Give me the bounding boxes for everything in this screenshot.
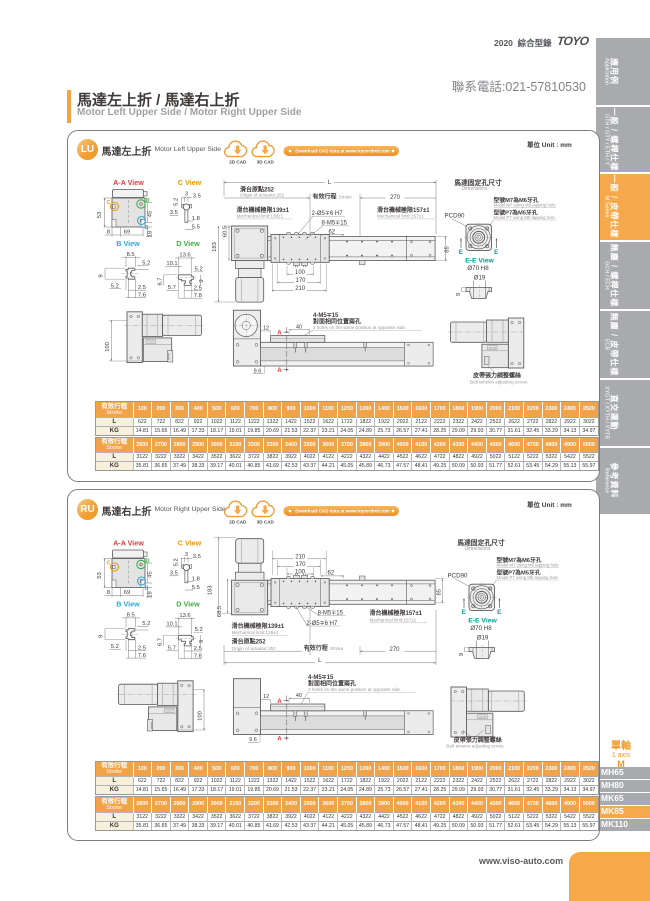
svg-text:5.5: 5.5 — [192, 585, 200, 591]
svg-text:40: 40 — [296, 693, 302, 699]
svg-text:L: L — [318, 658, 322, 664]
svg-text:8: 8 — [107, 590, 110, 596]
svg-text:9: 9 — [99, 274, 105, 277]
svg-text:有效行程: 有效行程 — [304, 644, 328, 652]
svg-text:3.5: 3.5 — [193, 194, 201, 200]
svg-text:B View: B View — [116, 239, 140, 248]
svg-text:9: 9 — [459, 653, 465, 656]
svg-text:TOYO: TOYO — [489, 346, 496, 350]
svg-text:40: 40 — [296, 324, 302, 330]
svg-text:B: B — [145, 225, 149, 231]
svg-text:Belt tension adjusting screw.: Belt tension adjusting screw. — [470, 379, 528, 384]
svg-text:18: 18 — [148, 231, 154, 237]
svg-text:3: 3 — [185, 192, 188, 198]
svg-text:183: 183 — [212, 242, 218, 252]
svg-text:13.6: 13.6 — [179, 613, 190, 619]
svg-text:A-A View: A-A View — [113, 539, 144, 548]
svg-text:滑台機械極限139±1: 滑台機械極限139±1 — [232, 622, 285, 630]
svg-text:E: E — [497, 609, 501, 616]
svg-text:9: 9 — [99, 635, 105, 638]
svg-text:270: 270 — [389, 647, 400, 653]
svg-text:Dimensions: Dimensions — [464, 546, 491, 552]
svg-text:9: 9 — [456, 293, 462, 296]
svg-text:有效行程: 有效行程 — [313, 193, 337, 201]
svg-text:53: 53 — [97, 572, 103, 578]
svg-text:B View: B View — [116, 600, 140, 609]
svg-text:100: 100 — [295, 570, 306, 576]
svg-text:10.1: 10.1 — [166, 261, 177, 267]
svg-text:53: 53 — [97, 212, 103, 218]
svg-text:1.8: 1.8 — [192, 577, 200, 583]
svg-text:Mechanical limit:157±1: Mechanical limit:157±1 — [370, 618, 417, 623]
svg-text:Ø19: Ø19 — [474, 275, 486, 282]
svg-text:A: A — [277, 367, 282, 374]
svg-text:2 holes on the same position a: 2 holes on the same position at opposite… — [308, 687, 401, 692]
svg-text:1.8: 1.8 — [192, 216, 200, 222]
svg-text:69: 69 — [124, 230, 130, 236]
svg-text:C: C — [107, 561, 111, 567]
svg-text:3.5: 3.5 — [193, 554, 201, 560]
svg-text:4-M5∓15: 4-M5∓15 — [313, 313, 339, 319]
svg-text:210: 210 — [295, 286, 306, 292]
svg-text:100: 100 — [105, 342, 111, 352]
svg-text:183: 183 — [208, 585, 214, 595]
svg-text:A: A — [277, 698, 282, 705]
svg-text:Origin of actuator:252: Origin of actuator:252 — [232, 646, 277, 651]
svg-text:TOYO: TOYO — [479, 715, 486, 719]
svg-text:滑台機械極限157±1: 滑台機械極限157±1 — [370, 609, 423, 617]
svg-text:Model P7 using M5 tapping hole: Model P7 using M5 tapping hole — [497, 575, 559, 580]
svg-text:A: A — [277, 736, 282, 743]
svg-text:8.5: 8.5 — [127, 613, 135, 619]
svg-text:170: 170 — [295, 562, 306, 568]
svg-text:L: L — [328, 180, 332, 186]
svg-text:D View: D View — [176, 239, 200, 248]
svg-text:皮帶張力調整螺絲: 皮帶張力調整螺絲 — [473, 372, 521, 380]
svg-text:9: 9 — [199, 279, 205, 282]
svg-text:210: 210 — [295, 554, 306, 560]
svg-text:69: 69 — [124, 590, 130, 596]
svg-text:E: E — [494, 249, 498, 256]
svg-text:13.6: 13.6 — [179, 252, 190, 258]
svg-text:5.2: 5.2 — [174, 198, 180, 206]
svg-text:4-M5∓15: 4-M5∓15 — [308, 675, 334, 681]
svg-text:A-A View: A-A View — [113, 178, 144, 187]
svg-text:E: E — [459, 249, 463, 256]
svg-text:PCD90: PCD90 — [445, 213, 466, 220]
svg-text:PCD90: PCD90 — [448, 573, 469, 580]
svg-text:C View: C View — [178, 539, 202, 548]
svg-text:Model M7 using M6 tapping hole: Model M7 using M6 tapping hole — [497, 563, 560, 568]
svg-text:60.5: 60.5 — [222, 226, 228, 237]
svg-text:8.5: 8.5 — [127, 252, 135, 258]
svg-text:6.7: 6.7 — [157, 638, 163, 646]
svg-text:Ø19: Ø19 — [477, 635, 489, 642]
svg-text:270: 270 — [390, 195, 401, 201]
svg-text:Ø70 H8: Ø70 H8 — [470, 625, 492, 632]
svg-text:D View: D View — [176, 600, 200, 609]
svg-text:TOYO: TOYO — [166, 709, 173, 713]
svg-text:E: E — [462, 609, 466, 616]
svg-text:9: 9 — [199, 640, 205, 643]
svg-text:2 holes on the same position a: 2 holes on the same position at opposite… — [313, 325, 406, 330]
svg-text:TOYO: TOYO — [147, 340, 154, 344]
svg-text:5.2: 5.2 — [174, 558, 180, 566]
svg-text:Mechanical limit:139±1: Mechanical limit:139±1 — [232, 630, 279, 635]
svg-text:45: 45 — [148, 571, 154, 577]
svg-text:Ø70 H8: Ø70 H8 — [467, 265, 489, 272]
svg-text:45: 45 — [148, 211, 154, 217]
svg-text:3: 3 — [185, 552, 188, 558]
svg-text:A: A — [277, 330, 282, 337]
svg-text:Model P7 using M5 tapping hole: Model P7 using M5 tapping hole — [494, 215, 556, 220]
svg-text:85: 85 — [436, 589, 442, 595]
svg-text:Origin of actuator:252: Origin of actuator:252 — [240, 193, 285, 198]
svg-text:Belt tension adjusting screw.: Belt tension adjusting screw. — [446, 744, 504, 749]
svg-text:C: C — [107, 200, 111, 206]
svg-text:C View: C View — [178, 178, 202, 187]
svg-text:8: 8 — [107, 230, 110, 236]
svg-text:Mechanical limit:157±1: Mechanical limit:157±1 — [377, 214, 424, 219]
svg-text:5.5: 5.5 — [192, 225, 200, 231]
svg-text:Dimensions: Dimensions — [461, 186, 488, 192]
svg-text:Stroke: Stroke — [339, 195, 353, 200]
svg-text:B: B — [145, 586, 149, 592]
svg-text:Stroke: Stroke — [330, 646, 344, 651]
svg-text:E-E View: E-E View — [468, 617, 497, 624]
svg-text:E-E View: E-E View — [465, 257, 494, 264]
svg-text:85: 85 — [444, 246, 450, 252]
svg-text:滑台原點252: 滑台原點252 — [232, 638, 267, 646]
svg-text:100: 100 — [295, 270, 306, 276]
svg-text:Mechanical limit:139±1: Mechanical limit:139±1 — [237, 214, 284, 219]
svg-text:Model M7 using M6 tapping hole: Model M7 using M6 tapping hole — [494, 203, 557, 208]
svg-text:18: 18 — [148, 591, 154, 597]
svg-text:6.7: 6.7 — [157, 277, 163, 285]
svg-text:10.1: 10.1 — [166, 622, 177, 628]
svg-text:170: 170 — [295, 278, 306, 284]
svg-text:100: 100 — [197, 711, 203, 721]
